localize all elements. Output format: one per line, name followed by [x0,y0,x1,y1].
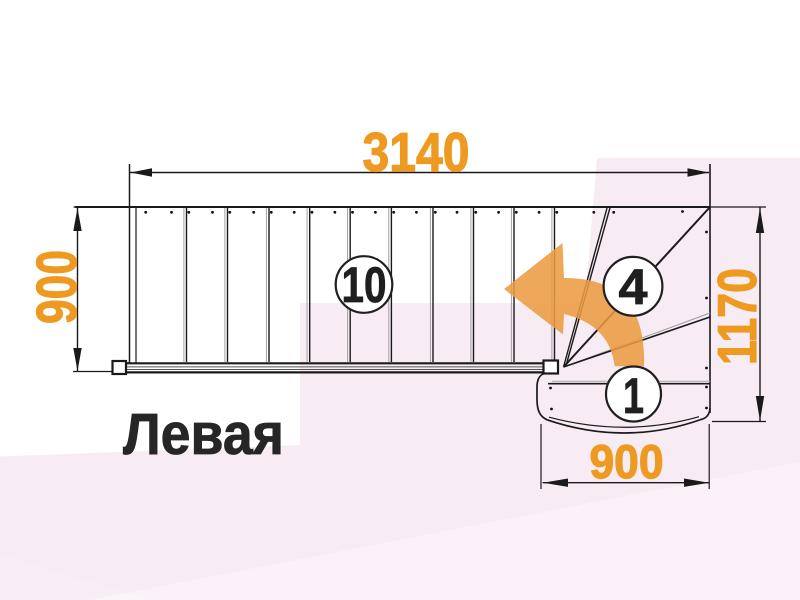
svg-text:Левая: Левая [123,402,284,467]
svg-text:10: 10 [342,257,387,313]
svg-text:3140: 3140 [363,121,470,183]
svg-text:4: 4 [619,259,648,315]
svg-text:900: 900 [25,250,89,324]
svg-text:1: 1 [623,368,644,424]
svg-text:1170: 1170 [706,268,768,365]
svg-text:900: 900 [590,435,664,488]
